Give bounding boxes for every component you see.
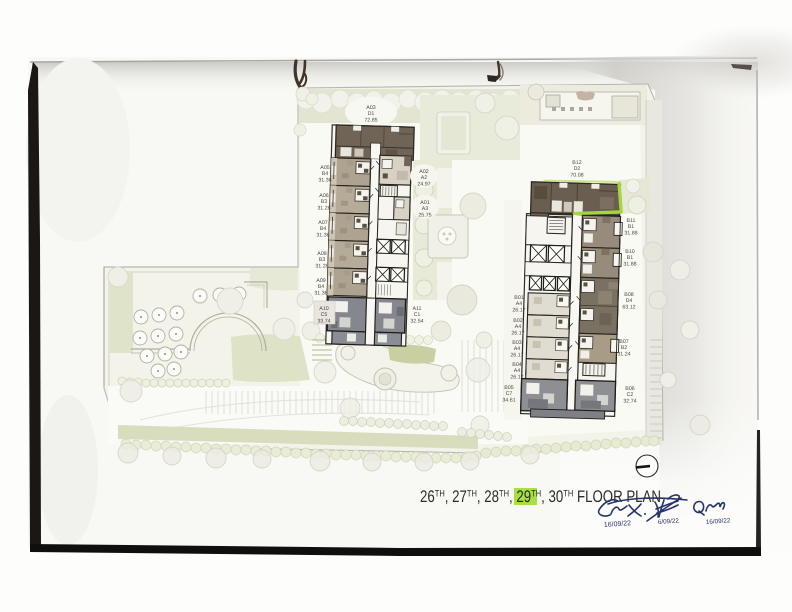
svg-text:6/09/22: 6/09/22 xyxy=(658,518,680,526)
svg-text:26TH, 27TH, 28TH, 29TH, 30TH F: 26TH, 27TH, 28TH, 29TH, 30TH FLOOR PLAN xyxy=(420,487,661,506)
